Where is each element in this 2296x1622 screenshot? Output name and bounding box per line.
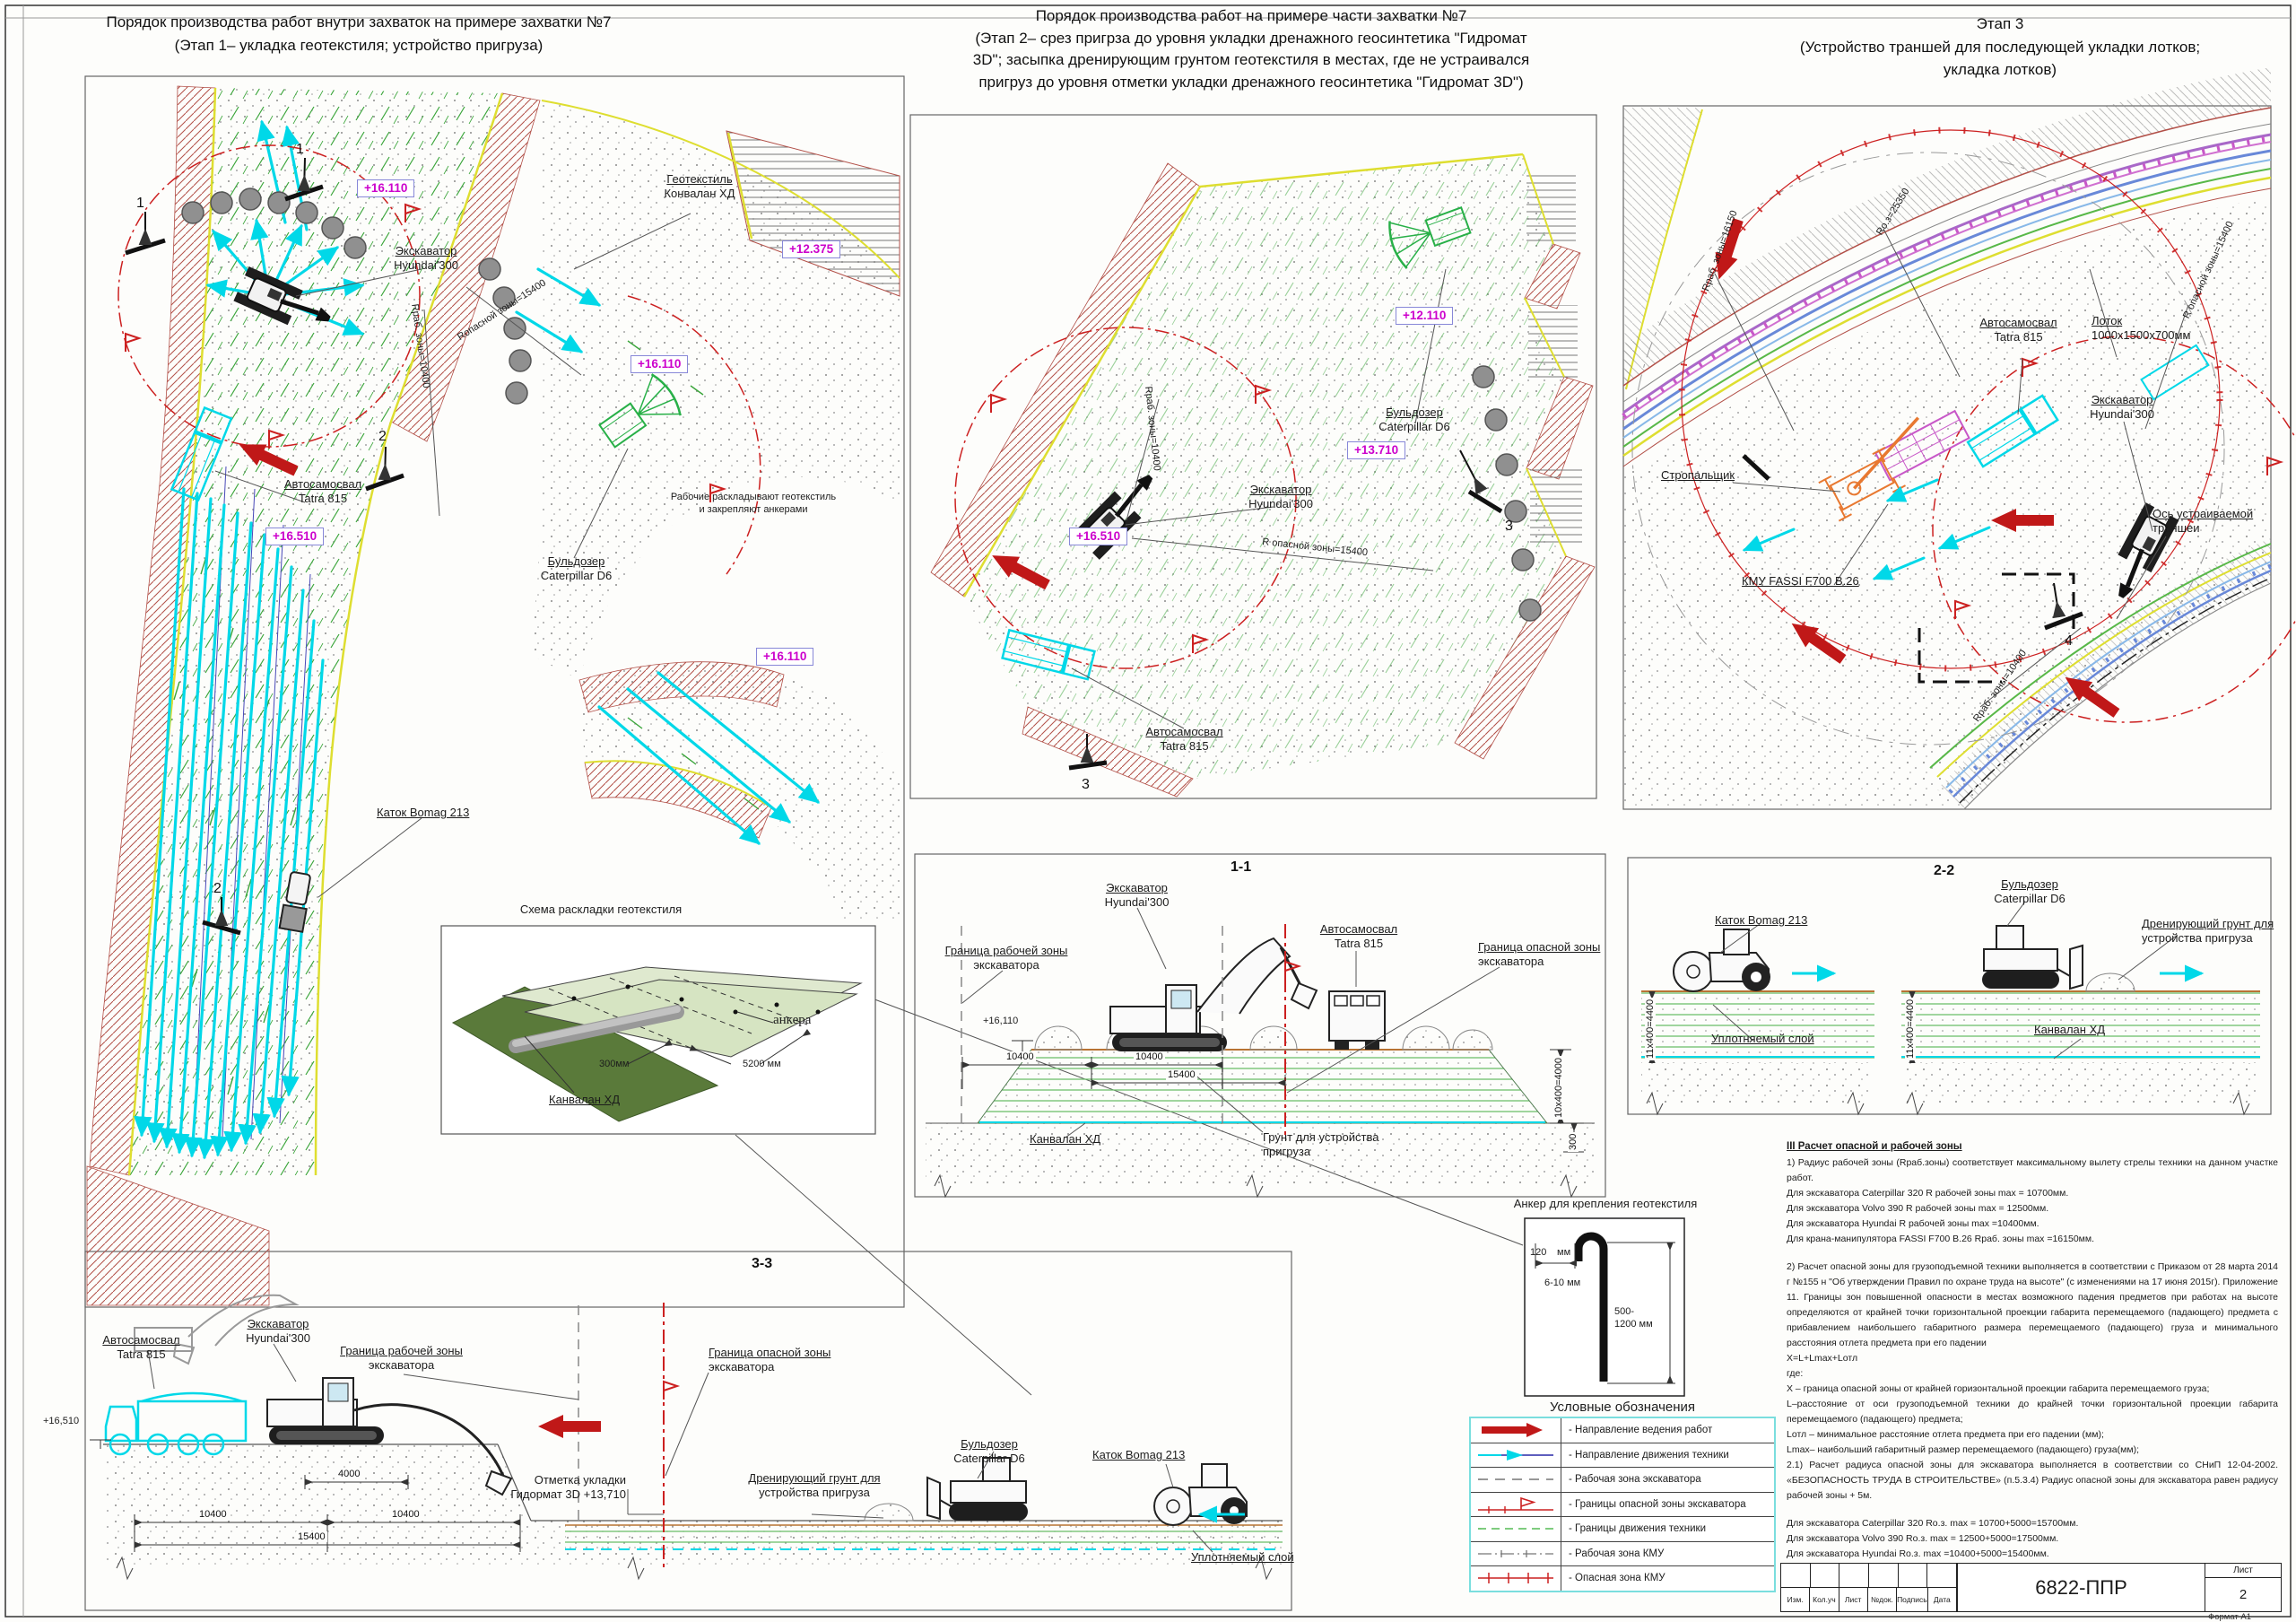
elevation-badge: +16.510 bbox=[265, 528, 324, 545]
plan1-dozer-label: БульдозерCaterpillar D6 bbox=[520, 554, 632, 584]
s33-drain-label: Дренирующий грунт дляустройства пригруза bbox=[743, 1471, 886, 1501]
stage3-title: Этап 3(Устройство траншей для последующе… bbox=[1749, 13, 2251, 82]
s33-dim: 10400 bbox=[197, 1509, 229, 1520]
plan1-roller-label: Каток Bomag 213 bbox=[377, 806, 469, 820]
plan3-drawing bbox=[1623, 67, 2296, 809]
title-block: Изм. Кол.уч Лист №док. Подпись Дата 6822… bbox=[1780, 1563, 2282, 1612]
section-1-1-title: 1-1 bbox=[1231, 859, 1251, 876]
legend-row: - Рабочая зона экскаватора bbox=[1471, 1467, 1774, 1492]
legend-row: - Направление ведения работ bbox=[1471, 1418, 1774, 1443]
plan3-slinger-label: Стропальщик bbox=[1661, 468, 1735, 483]
s33-border-work-label: Граница рабочей зоныэкскаватора bbox=[327, 1344, 475, 1373]
s33-dim: 15400 bbox=[296, 1531, 327, 1542]
legend-row: - Границы движения техники bbox=[1471, 1516, 1774, 1541]
s11-border-danger-label: Граница опасной зоныэкскаватора bbox=[1478, 940, 1600, 970]
plan3-kmu-label: КМУ FASSI F700 B.26 bbox=[1742, 574, 1859, 589]
plan1-truck-label: АвтосамосвалTatra 815 bbox=[269, 477, 377, 507]
s33-dim: 4000 bbox=[336, 1469, 361, 1479]
section-mark-4: 4 bbox=[2065, 633, 2073, 650]
s11-dim-300: 300 bbox=[1568, 1132, 1578, 1152]
stage1-title: Порядок производства работ внутри захват… bbox=[90, 11, 628, 57]
plan1-excavator-label: ЭкскаваторHyundai'300 bbox=[377, 244, 475, 274]
plan3-trench-axis-label: Ось устраиваемойтраншеи bbox=[2152, 507, 2253, 536]
elevation-badge: +12.110 bbox=[1396, 307, 1453, 325]
s11-dim: 10400 bbox=[1004, 1051, 1036, 1062]
section-mark-1: 1 bbox=[296, 142, 304, 158]
plan3-truck-label: АвтосамосвалTatra 815 bbox=[1962, 316, 2074, 345]
s22-drain-label: Дренирующий грунт дляустройства пригруза bbox=[2142, 917, 2274, 946]
s11-kanvalan-label: Канвалан ХД bbox=[1030, 1132, 1100, 1147]
legend: Условные обозначения - Направление веден… bbox=[1469, 1400, 1776, 1592]
s11-dim: 10400 bbox=[1134, 1051, 1165, 1062]
s33-border-danger-label: Граница опасной зоныэкскаватора bbox=[709, 1346, 831, 1375]
section-mark-3: 3 bbox=[1082, 777, 1090, 793]
anchor-dim-120: 120 bbox=[1530, 1247, 1546, 1260]
plan3-lotok-label: Лоток1000х1500х700мм bbox=[2092, 314, 2190, 344]
title-block-grid: Изм. Кол.уч Лист №док. Подпись Дата bbox=[1781, 1564, 1958, 1611]
s22-dim-vertical: 11х400=4400 bbox=[1645, 998, 1656, 1060]
legend-row: - Рабочая зона КМУ bbox=[1471, 1541, 1774, 1566]
anchor-dim-500-1200: 500-1200 мм bbox=[1614, 1306, 1653, 1331]
s33-truck-label: АвтосамосвалTatra 815 bbox=[85, 1333, 197, 1363]
s33-excavator-label: ЭкскаваторHyundai'300 bbox=[224, 1317, 332, 1347]
kmu-danger-zone-line-icon bbox=[1471, 1566, 1561, 1591]
s22-kanvalan-label: Канвалан ХД bbox=[2034, 1023, 2105, 1037]
inset-title: Схема раскладки геотекстиля bbox=[489, 903, 713, 917]
legend-title: Условные обозначения bbox=[1469, 1400, 1776, 1415]
plan2-truck-label: АвтосамосвалTatra 815 bbox=[1128, 725, 1240, 754]
elevation-badge: +16.110 bbox=[756, 648, 813, 666]
elevation-badge: +16.510 bbox=[1069, 528, 1127, 545]
s11-dim: 15400 bbox=[1166, 1069, 1197, 1080]
section-mark-3: 3 bbox=[1505, 519, 1513, 535]
sheet-number: 2 bbox=[2205, 1578, 2281, 1611]
anchor-dim-610: 6-10 мм bbox=[1544, 1278, 1580, 1290]
kmu-work-zone-line-icon bbox=[1471, 1542, 1561, 1566]
plan2-excavator-label: ЭкскаваторHyundai'300 bbox=[1227, 483, 1335, 512]
s22-layer-label: Уплотняемый слой bbox=[1711, 1032, 1814, 1046]
anchor-dim-mm: мм bbox=[1557, 1247, 1570, 1260]
machine-movement-border-line-icon bbox=[1471, 1517, 1561, 1541]
work-direction-arrow-icon bbox=[1471, 1418, 1561, 1443]
anchor-title: Анкер для крепления геотекстиля bbox=[1475, 1197, 1735, 1211]
s22-roller-label: Каток Bomag 213 bbox=[1715, 913, 1807, 928]
legend-row: - Границы опасной зоны экскаватора bbox=[1471, 1492, 1774, 1517]
plan1-geotextile-label: ГеотекстильКонвалан ХД bbox=[628, 172, 771, 202]
plan3-excavator-label: ЭкскаваторHyundai'300 bbox=[2068, 393, 2176, 423]
s33-elevation: +16,510 bbox=[43, 1416, 79, 1428]
s22-dozer-label: БульдозерCaterpillar D6 bbox=[1971, 877, 2088, 907]
s22-dim-vertical: 11х400=4400 bbox=[1905, 998, 1916, 1060]
anchor-detail-drawing bbox=[1525, 1218, 1684, 1396]
excavator-danger-zone-line-icon bbox=[1471, 1493, 1561, 1517]
elevation-badge: +13.710 bbox=[1347, 441, 1405, 459]
s11-elevation: +16,110 bbox=[983, 1016, 1018, 1028]
stage2-title: Порядок производства работ на примере ча… bbox=[892, 5, 1610, 94]
s11-excavator-label: ЭкскаваторHyundai'300 bbox=[1085, 881, 1188, 911]
plan2-dozer-label: БульдозерCaterpillar D6 bbox=[1356, 405, 1473, 435]
plan1-workers-label: Рабочие раскладывают геотекстильи закреп… bbox=[659, 492, 848, 517]
s33-layer-label: Уплотняемый слой bbox=[1191, 1550, 1294, 1565]
elevation-badge: +12.375 bbox=[782, 240, 840, 258]
s11-prigruz-label: Грунт для устройствапригруза bbox=[1263, 1130, 1378, 1160]
section-3-3-title: 3-3 bbox=[752, 1256, 772, 1272]
safety-notes: III Расчет опасной и рабочей зоны 1) Рад… bbox=[1787, 1141, 2278, 1577]
legend-row: - Опасная зона КМУ bbox=[1471, 1565, 1774, 1591]
s33-dim: 10400 bbox=[390, 1509, 422, 1520]
s11-truck-label: АвтосамосвалTatra 815 bbox=[1305, 922, 1413, 952]
s11-border-work-label: Граница рабочей зоныэкскаватора bbox=[935, 944, 1078, 973]
machine-movement-arrow-icon bbox=[1471, 1443, 1561, 1468]
excavator-work-zone-line-icon bbox=[1471, 1468, 1561, 1492]
drawing-sheet: Порядок производства работ внутри захват… bbox=[0, 0, 2296, 1622]
elevation-badge: +16.110 bbox=[631, 355, 688, 373]
section-2-2-title: 2-2 bbox=[1934, 863, 1954, 879]
plan2-drawing bbox=[931, 154, 1595, 797]
sheet-label: Лист bbox=[2205, 1564, 2281, 1578]
elevation-badge: +16.110 bbox=[357, 179, 414, 197]
legend-row: - Направление движения техники bbox=[1471, 1443, 1774, 1468]
format-label: Формат А1 bbox=[2208, 1612, 2251, 1622]
section-mark-2: 2 bbox=[213, 881, 222, 897]
section-mark-2: 2 bbox=[378, 429, 387, 445]
inset-drawing bbox=[441, 926, 875, 1134]
inset-kanvalan-label: Канвалан ХД bbox=[549, 1093, 620, 1107]
inset-anchors-label: анкера bbox=[773, 1012, 811, 1029]
s33-roller-label: Каток Bomag 213 bbox=[1092, 1448, 1185, 1462]
s33-dozer-label: БульдозерCaterpillar D6 bbox=[931, 1437, 1048, 1467]
inset-dim-5200: 5200 мм bbox=[743, 1059, 781, 1071]
s33-gidromat-label: Отметка укладкиГидормат 3D +13,710 bbox=[509, 1473, 626, 1503]
s11-dim-vertical: 10х400=4000 bbox=[1553, 1056, 1564, 1120]
section-mark-1: 1 bbox=[136, 196, 144, 212]
document-code: 6822-ППР bbox=[1958, 1564, 2205, 1611]
inset-dim-300: 300мм bbox=[599, 1059, 629, 1071]
